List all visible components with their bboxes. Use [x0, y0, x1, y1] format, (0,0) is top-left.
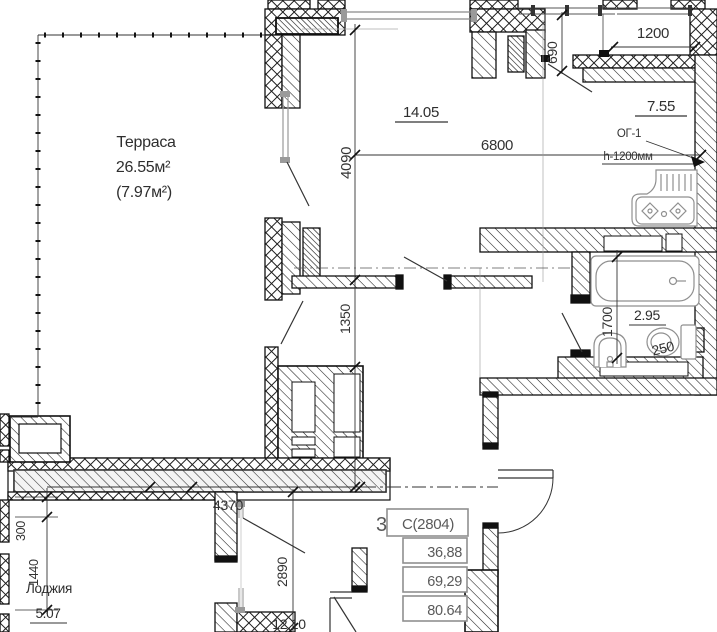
- info-table: 3 С(2804) 36,88 69,29 80.64: [376, 509, 468, 621]
- labels-layer: Терраса 26.55м² (7.97м²) 14.05 7.55 2.95…: [14, 25, 687, 632]
- dim-6800: 6800: [481, 137, 513, 154]
- living-area: 14.05: [403, 104, 439, 121]
- loggia-door-leaf: [243, 518, 305, 553]
- dim-690: 690: [544, 41, 560, 64]
- floor-plan-canvas: Терраса 26.55м² (7.97м²) 14.05 7.55 2.95…: [0, 0, 717, 632]
- bathroom-door-leaf: [562, 313, 582, 352]
- terrace-boundary: [10, 35, 265, 417]
- dim-300: 300: [14, 521, 28, 541]
- window-note-height: h-1200мм: [603, 151, 653, 163]
- bathtub: [591, 256, 699, 306]
- bedroom-area: 12.10: [272, 616, 306, 632]
- table-prefix: 3: [376, 514, 387, 536]
- dim-1350: 1350: [337, 304, 353, 334]
- washbasin: [594, 333, 626, 367]
- dim-2890: 2890: [274, 557, 290, 587]
- table-living-area: 36,88: [427, 545, 462, 561]
- dim-4370: 4370: [213, 497, 243, 513]
- table-area: 69,29: [427, 574, 462, 590]
- dim-1200: 1200: [637, 25, 669, 42]
- terrace-door2-leaf: [281, 301, 303, 344]
- corridor-door-leaf: [404, 257, 447, 281]
- kitchen-sink: [632, 170, 697, 226]
- terrace-door-leaf: [287, 162, 309, 206]
- dim-1440: 1440: [27, 559, 41, 586]
- terrace-label: Терраса: [116, 134, 176, 151]
- dim-1700: 1700: [599, 307, 615, 337]
- dim-4090: 4090: [338, 147, 355, 179]
- terrace-area: 26.55м²: [116, 159, 171, 176]
- table-unit: С(2804): [402, 516, 454, 533]
- bathroom-area: 2.95: [634, 307, 661, 323]
- kitchen-area: 7.55: [647, 98, 675, 115]
- terrace-area-alt: (7.97м²): [116, 184, 172, 201]
- bedroom-door-leaf: [334, 597, 356, 632]
- entry-door-arc: [498, 478, 553, 533]
- table-total-area: 80.64: [427, 603, 462, 619]
- floor-plan-drawing: Терраса 26.55м² (7.97м²) 14.05 7.55 2.95…: [0, 0, 717, 632]
- window-note-type: ОГ-1: [617, 128, 641, 140]
- loggia-area: 5.07: [35, 606, 60, 621]
